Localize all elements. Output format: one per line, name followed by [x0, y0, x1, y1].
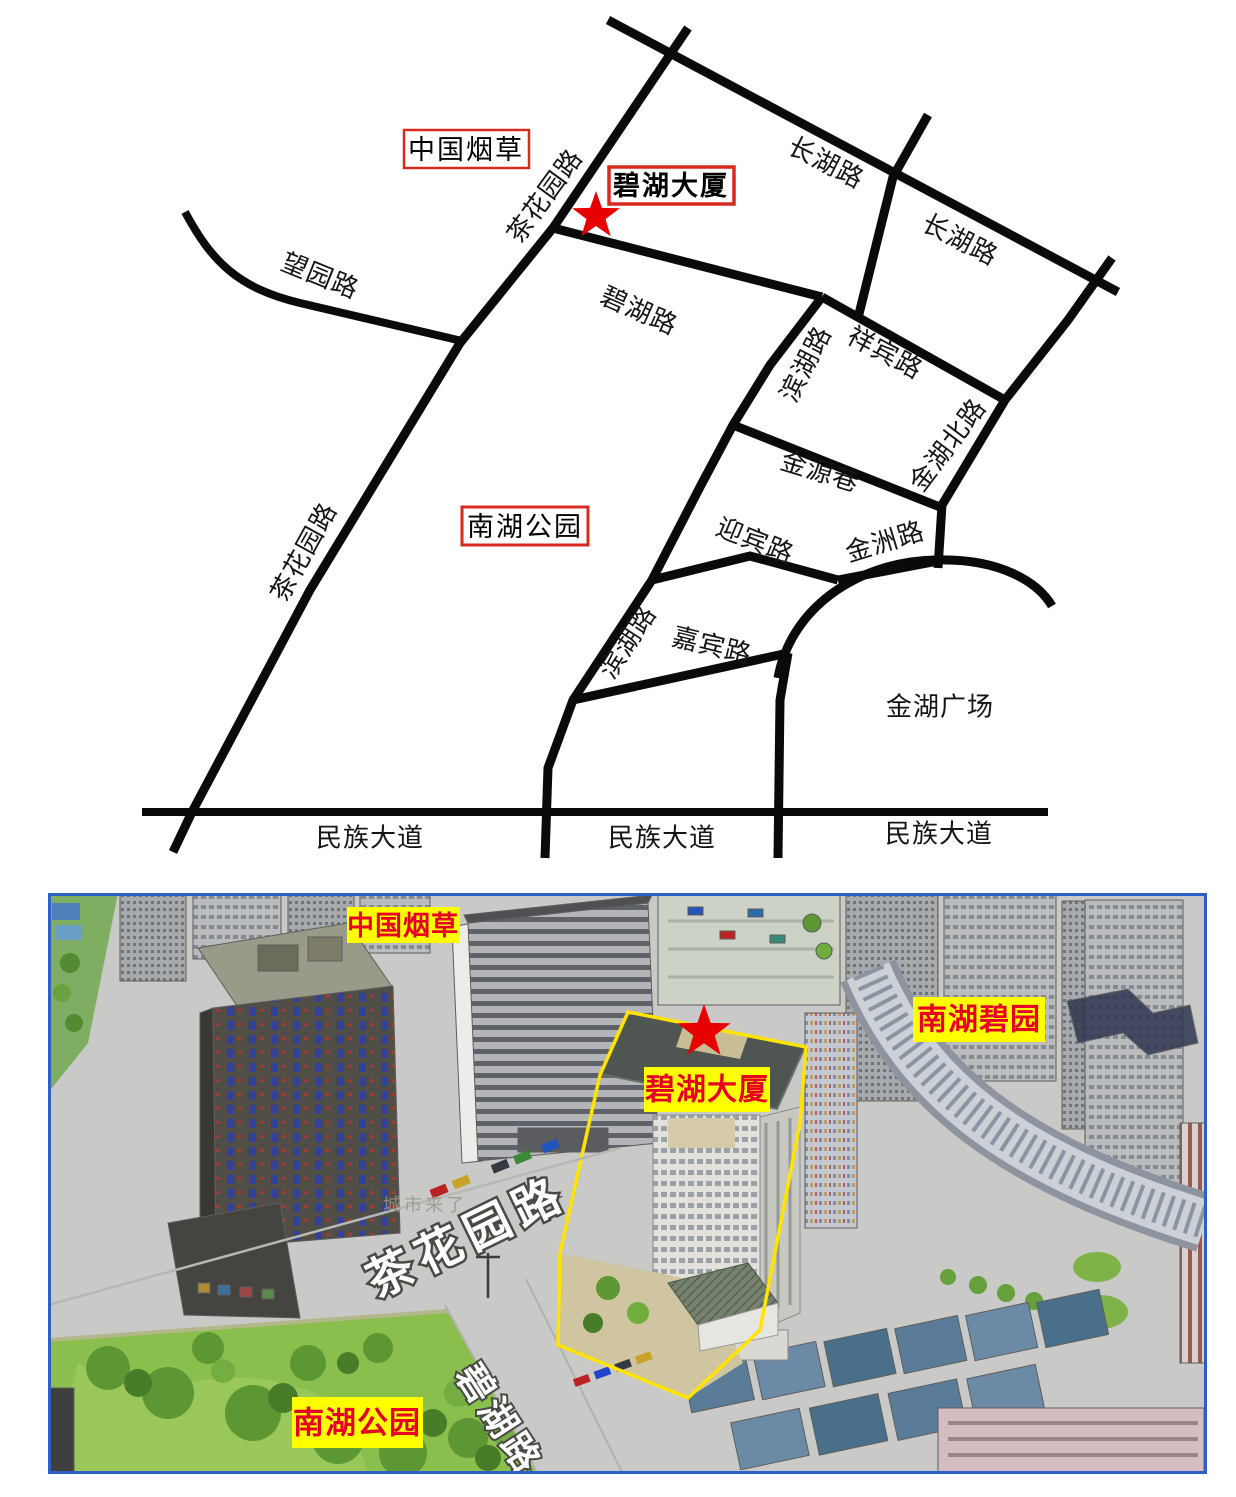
- photo-scene: 城市来了 茶花园路 碧湖路 中国烟草 南湖碧园 碧湖大厦 南湖公园: [48, 893, 1207, 1474]
- mall-parking-deck: [658, 893, 840, 1005]
- road-bihu: [553, 228, 822, 297]
- road-label-wangyuan: 望园路: [277, 247, 363, 304]
- watermark-text: 城市来了: [383, 1195, 467, 1215]
- road-jinhubei-north: [1005, 258, 1112, 400]
- birdseye-photo-map: 城市来了 茶花园路 碧湖路 中国烟草 南湖碧园 碧湖大厦 南湖公园: [48, 893, 1207, 1474]
- road-label-minzu-3: 民族大道: [885, 820, 993, 849]
- road-network: [142, 20, 1118, 858]
- road-label-minzu-2: 民族大道: [608, 824, 716, 853]
- biyuan-label: 南湖碧园: [917, 1004, 1041, 1037]
- road-label-jiabin: 嘉宾路: [669, 622, 755, 670]
- road-jiabin-south: [778, 653, 788, 858]
- park-label: 南湖公园: [293, 1406, 421, 1441]
- tobacco-label: 中国烟草: [347, 911, 459, 941]
- road-label-minzu-1: 民族大道: [316, 824, 424, 853]
- location-map-page: 望园路 茶花园路 茶花园路 长湖路 长湖路 碧湖路 祥宾路 滨湖路 金湖北路 金…: [0, 0, 1236, 1497]
- road-north-cross: [858, 115, 928, 318]
- road-label-changhu-2: 长湖路: [917, 209, 1002, 272]
- nanhu-park-box-label: 南湖公园: [467, 512, 583, 542]
- road-label-binhu-upper: 滨湖路: [775, 321, 838, 406]
- schematic-road-map: 望园路 茶花园路 茶花园路 长湖路 长湖路 碧湖路 祥宾路 滨湖路 金湖北路 金…: [0, 0, 1236, 878]
- tobacco-box-label: 中国烟草: [408, 135, 524, 165]
- road-yingbin: [652, 556, 838, 580]
- road-label-jinyuan: 金源巷: [777, 446, 863, 497]
- tower-label: 碧湖大厦: [645, 1074, 769, 1107]
- road-label-bihu: 碧湖路: [596, 281, 682, 340]
- bihu-tower-box-label: 碧湖大厦: [612, 171, 729, 201]
- area-label-jinhu-square: 金湖广场: [886, 693, 994, 722]
- road-changhu: [608, 20, 1118, 292]
